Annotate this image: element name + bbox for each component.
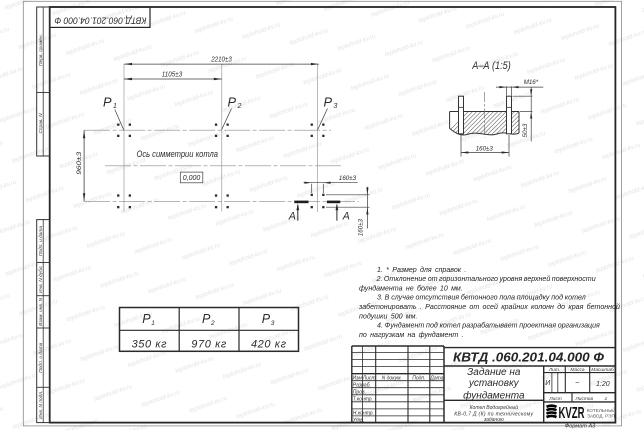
svg-text:А: А (342, 210, 350, 222)
svg-text:2: 2 (210, 320, 215, 327)
svg-text:4. Фундамент под котел разраба: 4. Фундамент под котел разрабатывает про… (377, 322, 600, 330)
svg-text:0,000: 0,000 (183, 175, 201, 182)
svg-text:3. В случае отсутствия бетонно: 3. В случае отсутствия бетонного пола пл… (377, 294, 586, 302)
svg-text:А: А (288, 210, 296, 222)
svg-text:Разраб.: Разраб. (353, 382, 371, 388)
svg-text:Подп. и дата: Подп. и дата (38, 226, 44, 256)
svg-text:А–А (1:5): А–А (1:5) (471, 60, 510, 72)
svg-text:Ось симметрии котла: Ось симметрии котла (136, 149, 218, 159)
svg-text:KVZR: KVZR (559, 405, 585, 422)
svg-text:Справ. N: Справ. N (38, 113, 44, 134)
svg-text:1: 1 (151, 320, 155, 327)
svg-text:Перв. примен.: Перв. примен. (38, 34, 44, 66)
svg-text:Задание на: Задание на (467, 367, 521, 378)
svg-text:2210±3: 2210±3 (210, 56, 231, 63)
svg-text:P: P (142, 312, 151, 326)
svg-text:фундамента не более 10 мм.: фундамента не более 10 мм. (359, 284, 463, 292)
svg-text:1: 1 (605, 396, 608, 402)
svg-text:–: – (575, 380, 580, 387)
svg-text:1. * Размер для справок .: 1. * Размер для справок . (377, 266, 466, 274)
svg-text:350 кг: 350 кг (132, 338, 168, 350)
svg-text:420 кг: 420 кг (251, 338, 287, 350)
svg-text:Подп. и дата: Подп. и дата (38, 342, 44, 372)
svg-text:160±3: 160±3 (357, 218, 364, 236)
svg-text:N докум.: N докум. (382, 375, 402, 381)
svg-text:Подп.: Подп. (412, 375, 425, 381)
svg-text:Формат А3: Формат А3 (565, 424, 596, 430)
svg-text:М16*: М16* (524, 79, 539, 86)
svg-text:фундамента: фундамента (463, 389, 525, 401)
svg-text:подушки 500 мм.: подушки 500 мм. (359, 312, 418, 320)
svg-text:заданию: заданию (483, 417, 504, 423)
svg-text:КВТД.060.201.04.000 Ф: КВТД.060.201.04.000 Ф (54, 15, 146, 26)
svg-text:Изм: Изм (353, 375, 363, 381)
svg-text:2. Отклонение от горизонтально: 2. Отклонение от горизонтального уровня … (376, 275, 596, 283)
svg-text:забетонировать . Расстояние от: забетонировать . Расстояние от осей край… (358, 303, 620, 311)
svg-text:КВТД .060.201.04.000 Ф: КВТД .060.201.04.000 Ф (453, 349, 604, 364)
svg-text:Котел Водогрейный: Котел Водогрейный (470, 404, 519, 411)
svg-text:P: P (103, 94, 112, 109)
svg-text:1105±3: 1105±3 (162, 71, 183, 78)
svg-text:50±3: 50±3 (522, 123, 529, 137)
svg-text:установку: установку (468, 378, 520, 389)
svg-text:ЗАВОД. РЭП: ЗАВОД. РЭП (587, 413, 615, 418)
svg-text:Утв.: Утв. (353, 417, 364, 423)
svg-text:Дата: Дата (429, 375, 443, 381)
svg-text:Инв. N подл.: Инв. N подл. (38, 391, 44, 419)
svg-text:P: P (202, 312, 211, 326)
svg-text:970 кг: 970 кг (191, 338, 227, 350)
svg-text:Взам. инв. N: Взам. инв. N (38, 297, 44, 325)
svg-text:P: P (262, 312, 271, 326)
svg-text:Лист: Лист (548, 396, 561, 402)
svg-text:1:20: 1:20 (596, 381, 610, 388)
svg-text:2: 2 (237, 103, 242, 110)
svg-text:160±3: 160±3 (476, 145, 494, 152)
svg-text:1: 1 (113, 103, 117, 110)
svg-text:Пров.: Пров. (353, 390, 366, 396)
svg-text:P: P (324, 94, 333, 109)
svg-text:P: P (228, 94, 237, 109)
svg-text:960±3: 960±3 (76, 151, 83, 174)
svg-text:Листов: Листов (575, 396, 594, 402)
svg-text:Инв. N дубл.: Инв. N дубл. (38, 265, 44, 293)
svg-text:Лит.: Лит. (548, 367, 560, 373)
svg-text:Т.контр.: Т.контр. (353, 396, 373, 402)
svg-text:по нагрузкам на фундамент .: по нагрузкам на фундамент . (359, 331, 464, 339)
svg-text:КОТЕЛЬНЫЙ: КОТЕЛЬНЫЙ (587, 406, 616, 413)
svg-text:3: 3 (271, 320, 275, 327)
svg-text:3: 3 (334, 103, 338, 110)
svg-text:Масштаб: Масштаб (591, 367, 614, 373)
svg-text:Масса: Масса (570, 367, 585, 373)
svg-text:Н.контр.: Н.контр. (353, 411, 374, 417)
svg-text:160±3: 160±3 (339, 175, 357, 182)
svg-text:Лист: Лист (362, 375, 376, 381)
